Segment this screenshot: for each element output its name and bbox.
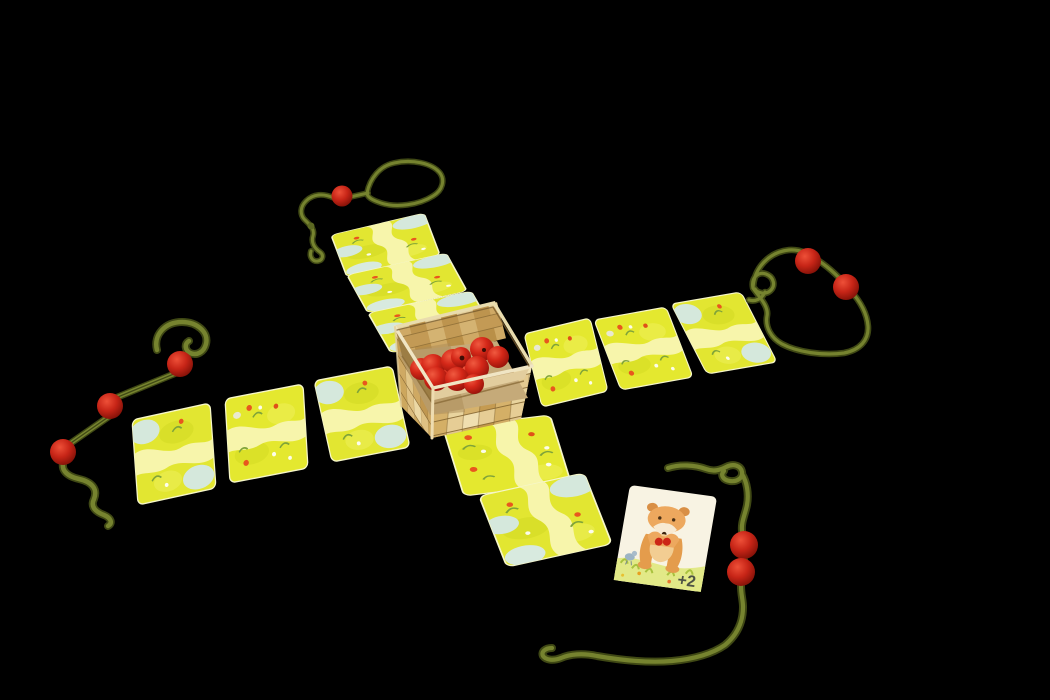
svg-text:+2: +2 — [676, 571, 697, 591]
